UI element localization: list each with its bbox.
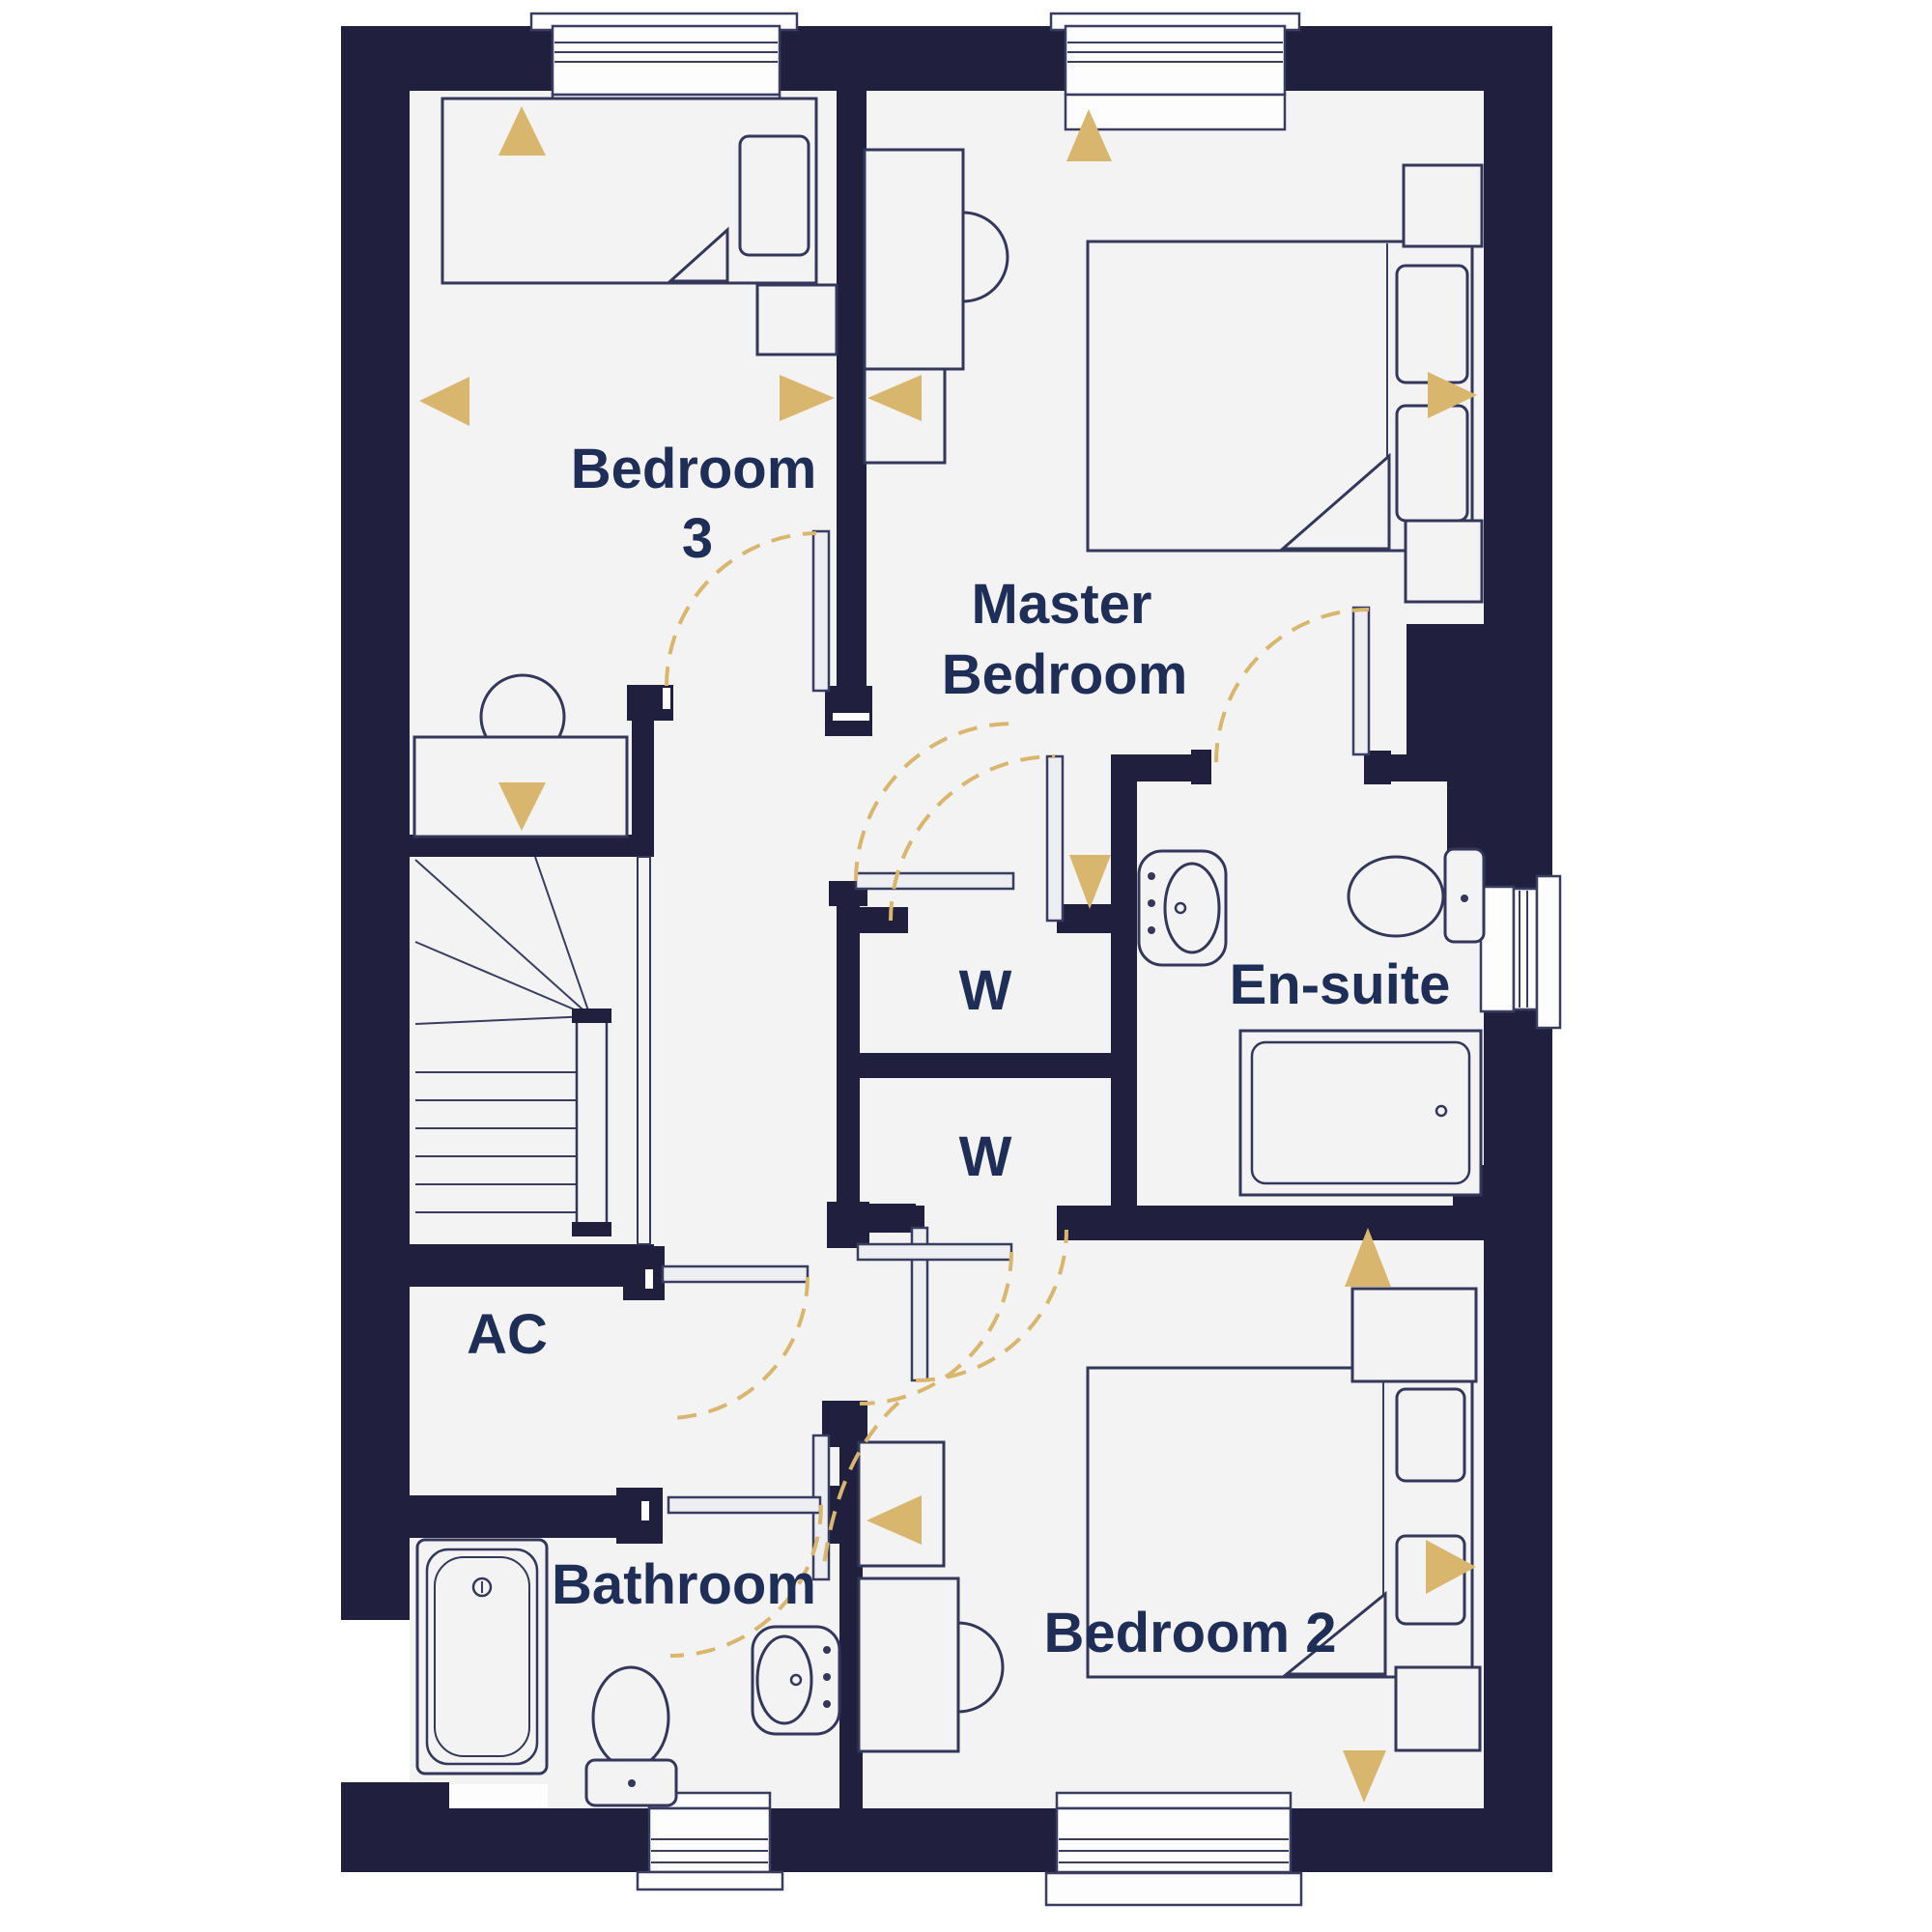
svg-text:Bedroom: Bedroom: [571, 438, 817, 500]
svg-text:Bathroom: Bathroom: [552, 1553, 816, 1616]
svg-text:Bedroom: Bedroom: [942, 643, 1188, 706]
svg-text:W: W: [959, 1125, 1012, 1188]
svg-text:Bedroom 2: Bedroom 2: [1044, 1602, 1337, 1664]
svg-text:En-suite: En-suite: [1230, 953, 1451, 1016]
svg-text:3: 3: [682, 507, 713, 570]
svg-text:AC: AC: [467, 1303, 548, 1366]
svg-text:W: W: [959, 959, 1012, 1022]
svg-text:Master: Master: [972, 573, 1152, 636]
